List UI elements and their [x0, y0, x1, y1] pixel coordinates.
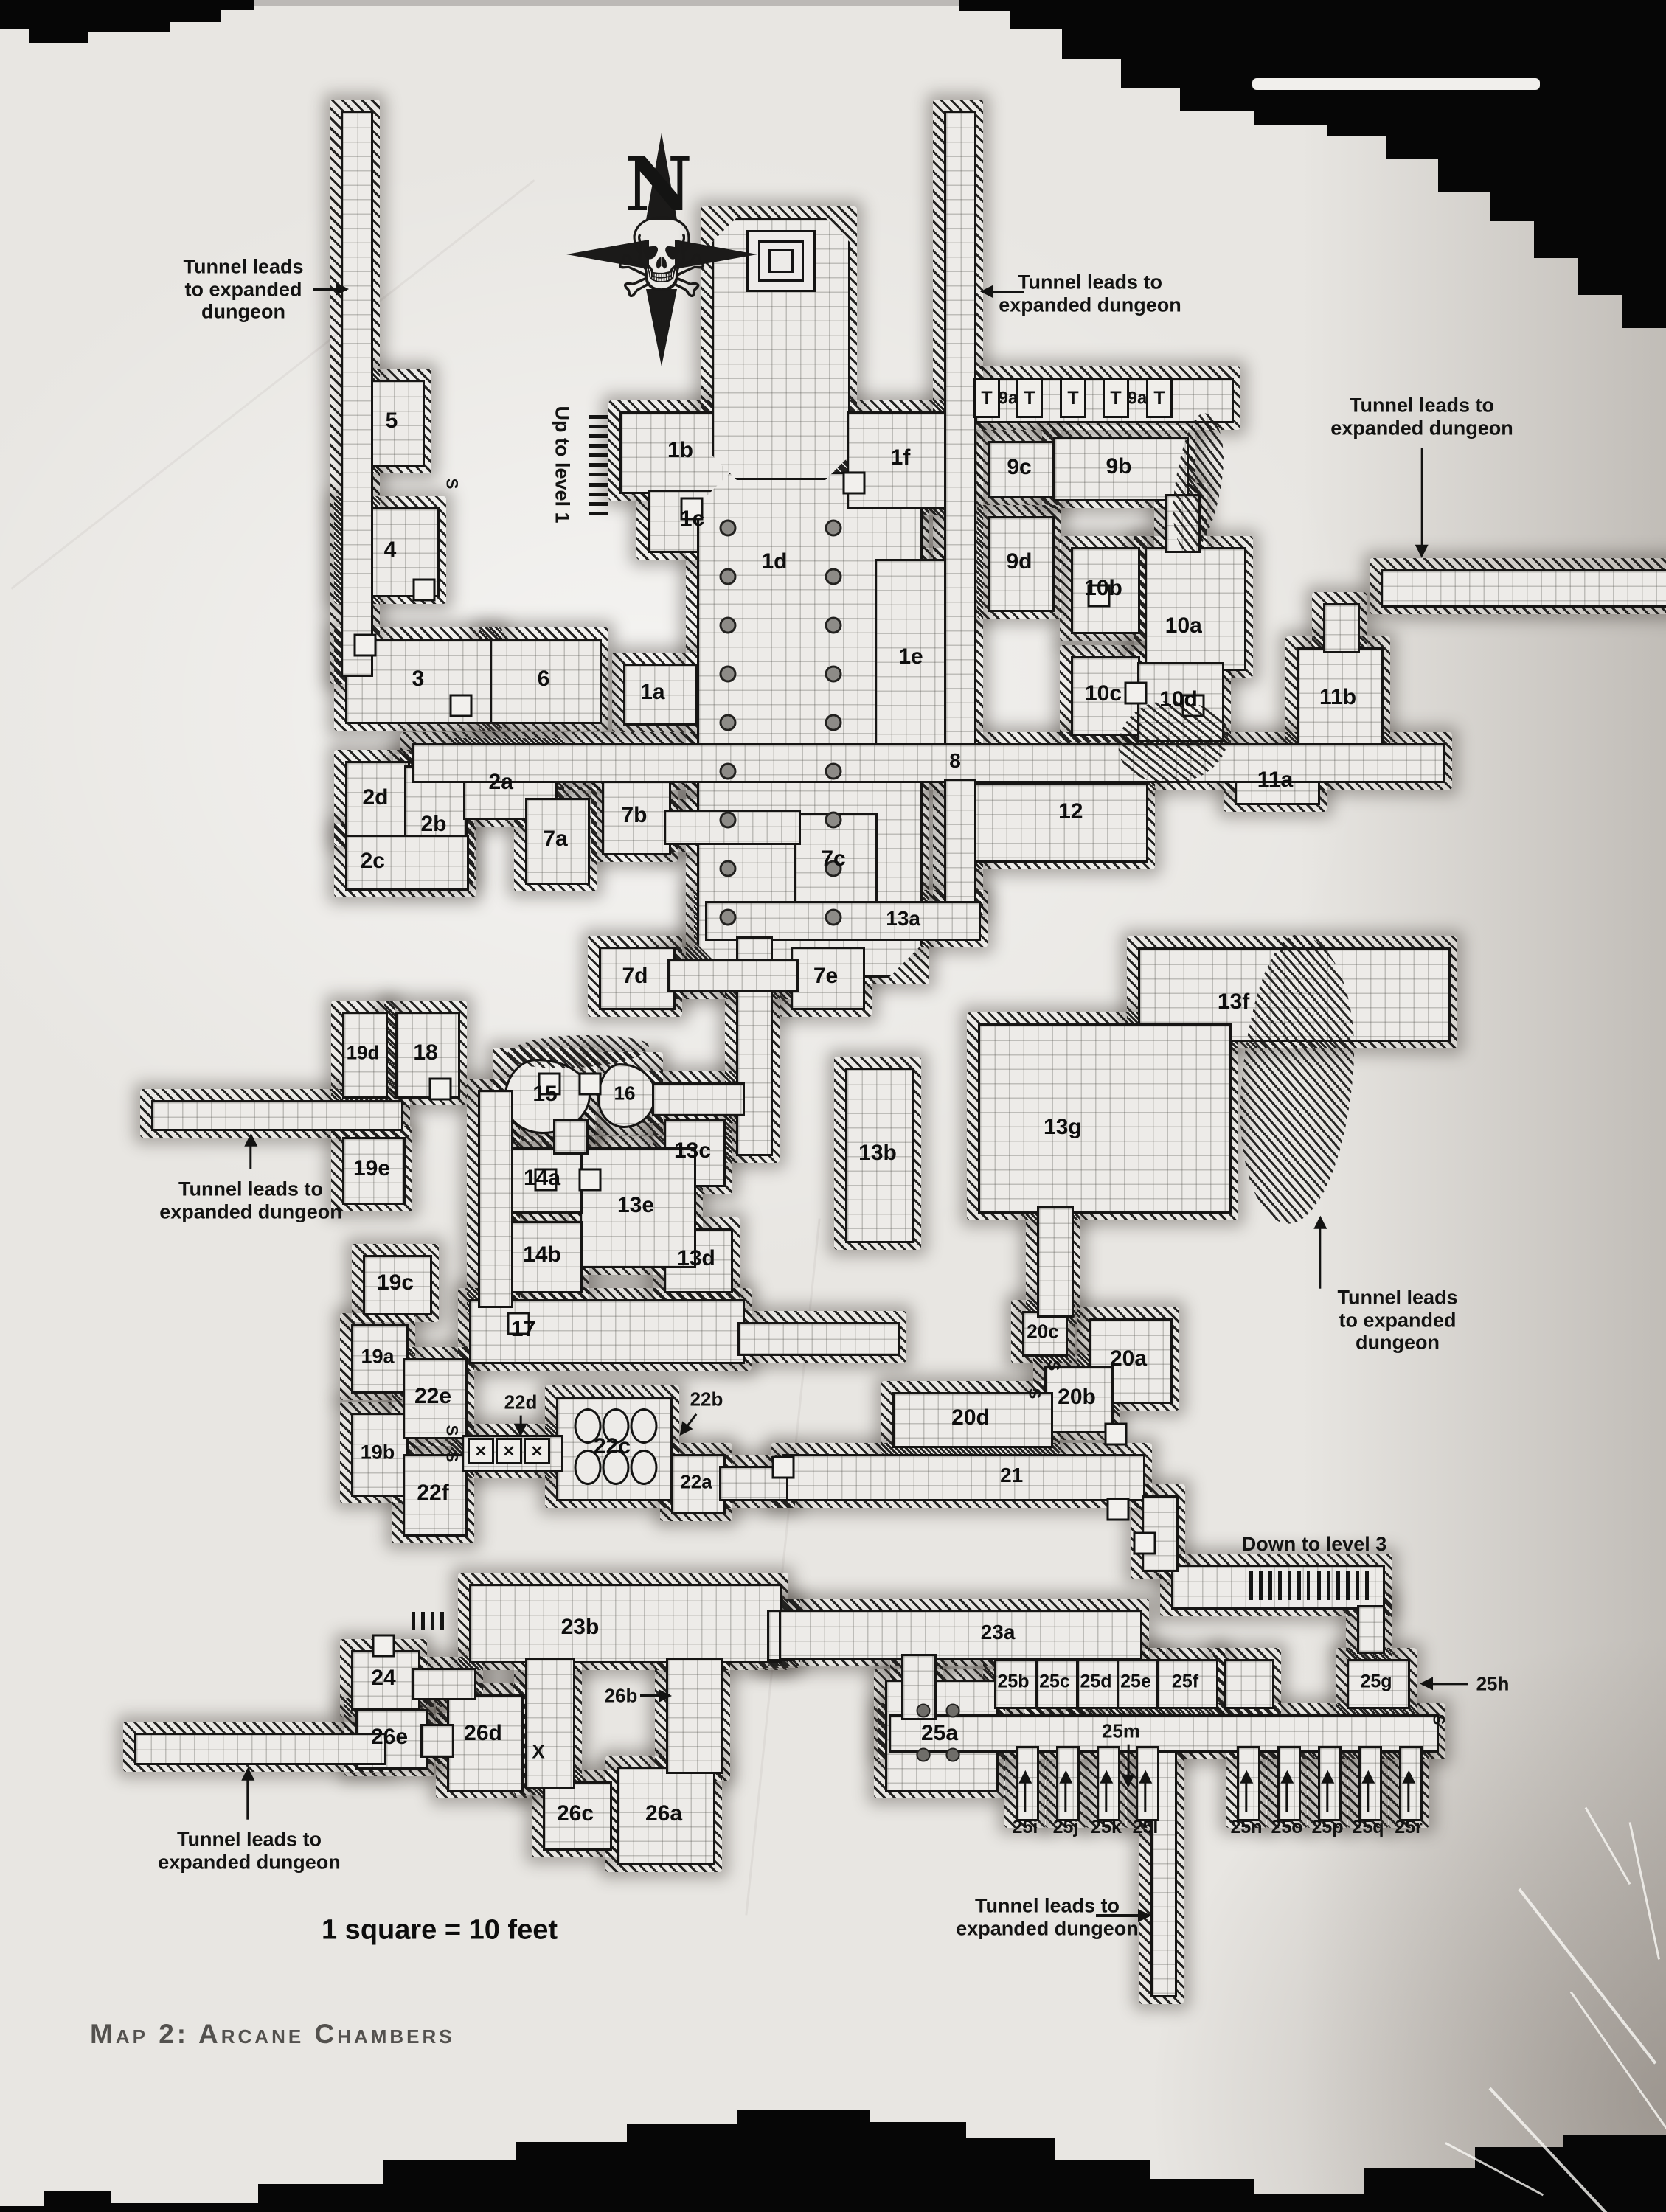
pointer-arrow-icon	[313, 288, 347, 290]
room-label-20d: 20d	[951, 1405, 990, 1430]
pillar-icon	[825, 909, 842, 926]
room-label-18: 18	[413, 1040, 437, 1065]
room-label-22f: 22f	[417, 1481, 448, 1506]
stairs-icon	[589, 415, 608, 477]
room-label-20b: 20b	[1058, 1385, 1096, 1410]
pillar-icon	[720, 909, 737, 926]
annotation: 22b	[690, 1388, 723, 1410]
door-marker	[1105, 1423, 1128, 1446]
annotation: Tunnel leads to expanded dungeon	[159, 1178, 342, 1223]
door-marker	[413, 579, 436, 602]
corridor	[1323, 603, 1360, 653]
pillar-icon	[825, 714, 842, 731]
corridor	[1016, 1746, 1039, 1821]
annotation: 9a	[1128, 388, 1148, 408]
room-label-14a: 14a	[524, 1166, 560, 1191]
corridor	[1224, 1659, 1274, 1709]
room-13g	[978, 1023, 1232, 1214]
door-marker	[772, 1456, 795, 1479]
stairs-icon	[412, 1612, 450, 1630]
room-label-1b: 1b	[667, 438, 693, 463]
corridor	[1097, 1746, 1120, 1821]
door-marker	[579, 1169, 602, 1192]
annotation: 25o	[1271, 1817, 1302, 1837]
corridor	[341, 111, 373, 677]
scratch-mark	[1518, 1888, 1656, 2065]
paper-slit	[1252, 78, 1540, 90]
room-label-19e: 19e	[353, 1156, 390, 1181]
room-label-25c: 25c	[1039, 1672, 1070, 1693]
room-label-10b: 10b	[1084, 576, 1122, 601]
corridor	[151, 1100, 403, 1131]
room-label-19b: 19b	[361, 1441, 395, 1464]
corridor	[1357, 1605, 1385, 1654]
annotation: Tunnel leads to expanded dungeon	[1337, 1286, 1457, 1354]
stairs-icon	[1249, 1571, 1310, 1600]
door-marker	[1107, 1498, 1130, 1521]
pointer-arrow-icon	[1144, 1773, 1146, 1812]
room-label-24: 24	[371, 1666, 395, 1691]
room-label-13e: 13e	[617, 1193, 654, 1218]
corridor	[553, 1119, 589, 1155]
annotation: Up to level 1	[551, 406, 574, 523]
trap-marker: ✕	[496, 1438, 522, 1464]
stairs-icon	[1317, 1571, 1375, 1600]
annotation: 26b	[605, 1685, 638, 1706]
room-label-22a: 22a	[680, 1471, 712, 1494]
room-label-10c: 10c	[1085, 681, 1122, 706]
annotation: Tunnel leads to expanded dungeon	[956, 1895, 1139, 1940]
room-label-23a: 23a	[981, 1621, 1016, 1644]
room-label-25b: 25b	[997, 1672, 1029, 1693]
room-label-9b: 9b	[1106, 454, 1131, 479]
room-label-16: 16	[614, 1082, 636, 1105]
trap-door-marker: T	[973, 378, 1000, 418]
pillar-icon	[825, 568, 842, 585]
room-label-12: 12	[1058, 799, 1083, 824]
pointer-arrow-icon	[1319, 1218, 1321, 1289]
room-label-25g: 25g	[1360, 1672, 1392, 1693]
room-label-3: 3	[412, 667, 425, 692]
map-title: Map 2: Arcane Chambers	[90, 2019, 455, 2050]
corridor	[737, 1322, 900, 1356]
room-label-7e: 7e	[813, 964, 838, 989]
room-label-1e: 1e	[898, 644, 923, 669]
scratch-mark	[1629, 1822, 1660, 1959]
annotation: S	[1044, 1360, 1063, 1371]
room-13a	[705, 901, 981, 941]
room-label-19a: 19a	[361, 1346, 394, 1368]
altar-icon	[768, 249, 794, 273]
corridor	[525, 1658, 575, 1789]
trap-door-marker: T	[1016, 378, 1043, 418]
room-label-1c: 1c	[680, 507, 704, 532]
room-label-22c: 22c	[594, 1434, 631, 1459]
room-label-13c: 13c	[674, 1138, 711, 1164]
room-label-20a: 20a	[1110, 1346, 1147, 1371]
compass-rose: ☠ N	[560, 118, 767, 376]
room-label-13f: 13f	[1218, 990, 1249, 1015]
room-23a	[779, 1610, 1142, 1660]
annotation: 25m	[1102, 1720, 1140, 1742]
dungeon-map-page: TTTTT✕✕✕ 54361a1b1c1d1e1f9c9b9d10b10a10c…	[0, 0, 1666, 2212]
annotation: Tunnel leads to expanded dungeon	[183, 255, 303, 323]
corridor	[478, 1090, 513, 1308]
scratch-mark	[1585, 1807, 1631, 1885]
room-label-26d: 26d	[464, 1721, 502, 1746]
corridor	[666, 1658, 723, 1774]
pillar-icon	[825, 812, 842, 829]
map-scale-note: 1 square = 10 feet	[322, 1915, 558, 1947]
annotation: 25r	[1395, 1817, 1423, 1837]
room-label-2c: 2c	[361, 849, 385, 874]
annotation: X	[532, 1741, 544, 1762]
corridor	[667, 959, 799, 992]
annotation: S	[442, 1452, 461, 1463]
pillar-icon	[720, 763, 737, 780]
pointer-arrow-icon	[246, 1770, 249, 1820]
annotation: 25j	[1053, 1817, 1079, 1837]
annotation: S	[442, 479, 461, 490]
room-label-4: 4	[384, 538, 397, 563]
pointer-arrow-icon	[1285, 1773, 1288, 1812]
door-marker	[372, 1635, 395, 1658]
room-23b	[469, 1584, 782, 1663]
pillar-icon	[720, 617, 737, 634]
pointer-arrow-icon	[1024, 1773, 1026, 1812]
pillar-icon	[720, 714, 737, 731]
pillar-dot-icon	[946, 1704, 960, 1718]
annotation: Tunnel leads to expanded dungeon	[1330, 394, 1513, 439]
door-marker	[354, 634, 377, 657]
room-label-14b: 14b	[523, 1242, 561, 1267]
pointer-arrow-icon	[1105, 1773, 1107, 1812]
room-label-2b: 2b	[420, 812, 446, 837]
corridor	[1056, 1746, 1080, 1821]
door-marker	[1125, 682, 1148, 705]
room-label-7a: 7a	[543, 827, 567, 852]
annotation: 22d	[504, 1391, 538, 1413]
room-label-19c: 19c	[377, 1270, 414, 1295]
room-label-5: 5	[386, 408, 398, 434]
annotation: 25k	[1091, 1817, 1122, 1837]
pillar-icon	[720, 520, 737, 537]
trap-marker: ✕	[524, 1438, 550, 1464]
pillar-icon	[720, 666, 737, 683]
pointer-arrow-icon	[1422, 1683, 1468, 1685]
room-label-11b: 11b	[1319, 685, 1356, 710]
annotation: 9a	[999, 388, 1018, 408]
room-label-2a: 2a	[489, 770, 513, 795]
door-marker	[429, 1078, 452, 1101]
room-label-9c: 9c	[1007, 455, 1031, 480]
trap-door-marker: T	[1103, 378, 1129, 418]
pointer-arrow-icon	[1127, 1745, 1129, 1786]
annotation: 25i	[1013, 1817, 1038, 1837]
room-label-6: 6	[538, 667, 550, 692]
room-label-19d: 19d	[347, 1042, 380, 1065]
annotation: 25p	[1311, 1817, 1343, 1837]
room-label-13b: 13b	[858, 1141, 897, 1166]
door-marker	[843, 472, 866, 495]
pointer-arrow-icon	[1064, 1773, 1066, 1812]
room-label-7c: 7c	[821, 846, 845, 872]
annotation: 25h	[1476, 1673, 1510, 1694]
corridor	[944, 111, 976, 751]
trap-door-marker: T	[1060, 378, 1086, 418]
trap-door-marker: T	[1146, 378, 1173, 418]
door-marker	[1134, 1532, 1156, 1555]
pointer-arrow-icon	[519, 1416, 521, 1435]
pool-basin-icon	[631, 1408, 658, 1444]
corridor	[1318, 1746, 1342, 1821]
corridor	[652, 1082, 745, 1116]
corridor	[1381, 569, 1666, 608]
room-label-9d: 9d	[1006, 549, 1032, 574]
annotation: S	[1025, 1388, 1044, 1399]
pillar-icon	[825, 520, 842, 537]
room-label-1f: 1f	[891, 445, 911, 470]
corridor	[889, 1714, 1439, 1753]
room-label-11a: 11a	[1257, 768, 1293, 793]
annotation: S	[1429, 1714, 1448, 1725]
room-10a	[1145, 547, 1246, 671]
corridor	[1237, 1746, 1260, 1821]
annotation: 25q	[1352, 1817, 1384, 1837]
corridor	[1136, 1746, 1159, 1821]
room-label-26e: 26e	[371, 1725, 408, 1750]
annotation: Tunnel leads to expanded dungeon	[999, 271, 1181, 316]
room-label-25e: 25e	[1120, 1672, 1151, 1693]
room-label-1d: 1d	[761, 549, 787, 574]
room-label-13d: 13d	[677, 1246, 715, 1271]
room-label-21: 21	[1000, 1464, 1023, 1487]
pointer-arrow-icon	[1367, 1773, 1369, 1812]
pillar-icon	[825, 666, 842, 683]
pointer-arrow-icon	[680, 1413, 697, 1435]
annotation: 25n	[1230, 1817, 1262, 1837]
corridor	[1358, 1746, 1382, 1821]
pillar-icon	[825, 763, 842, 780]
room-label-8: 8	[949, 749, 961, 773]
room-12	[961, 783, 1148, 863]
pillar-dot-icon	[946, 1748, 960, 1762]
door-marker	[579, 1073, 602, 1096]
annotation: S	[442, 1425, 461, 1436]
annotation: Down to level 3	[1242, 1533, 1387, 1556]
pillar-dot-icon	[917, 1748, 931, 1762]
room-label-17: 17	[511, 1317, 535, 1342]
room-label-23b: 23b	[561, 1615, 600, 1640]
room-label-13a: 13a	[886, 907, 920, 931]
room-label-13g: 13g	[1044, 1115, 1082, 1140]
pointer-arrow-icon	[1407, 1773, 1409, 1812]
room-21	[782, 1454, 1145, 1501]
corridor	[1277, 1746, 1301, 1821]
annotation: Tunnel leads to expanded dungeon	[158, 1829, 341, 1874]
pointer-arrow-icon	[1326, 1773, 1328, 1812]
corridor	[1037, 1206, 1074, 1318]
stairs-icon	[589, 483, 608, 520]
room-label-25d: 25d	[1080, 1672, 1111, 1693]
pillar-icon	[720, 568, 737, 585]
room-label-22e: 22e	[414, 1384, 451, 1409]
room-label-20c: 20c	[1027, 1321, 1058, 1343]
corridor	[1399, 1746, 1423, 1821]
corridor	[420, 1724, 454, 1758]
room-label-7d: 7d	[622, 964, 648, 989]
paper-crease	[10, 179, 535, 589]
pillar-icon	[720, 860, 737, 877]
corridor	[412, 1668, 476, 1700]
pointer-arrow-icon	[1420, 448, 1423, 556]
pillar-icon	[720, 812, 737, 829]
room-label-2d: 2d	[362, 785, 388, 810]
pool-basin-icon	[631, 1450, 658, 1485]
room-label-15: 15	[532, 1082, 557, 1107]
room-label-1a: 1a	[640, 680, 664, 705]
room-label-25a: 25a	[921, 1721, 958, 1746]
corridor	[944, 779, 976, 910]
pillar-dot-icon	[917, 1704, 931, 1718]
room-label-25f: 25f	[1172, 1672, 1198, 1693]
pillar-icon	[825, 617, 842, 634]
trap-marker: ✕	[468, 1438, 494, 1464]
door-marker	[450, 695, 473, 717]
pointer-arrow-icon	[249, 1135, 251, 1169]
room-label-10d: 10d	[1159, 687, 1198, 712]
annotation: 25l	[1133, 1817, 1159, 1837]
compass-north-label: N	[625, 141, 692, 228]
room-label-26c: 26c	[557, 1801, 594, 1826]
room-label-10a: 10a	[1165, 613, 1202, 639]
pointer-arrow-icon	[1245, 1773, 1247, 1812]
pointer-arrow-icon	[640, 1694, 670, 1697]
room-label-26a: 26a	[645, 1801, 682, 1826]
room-label-7b: 7b	[621, 803, 647, 828]
corridor	[134, 1733, 386, 1765]
